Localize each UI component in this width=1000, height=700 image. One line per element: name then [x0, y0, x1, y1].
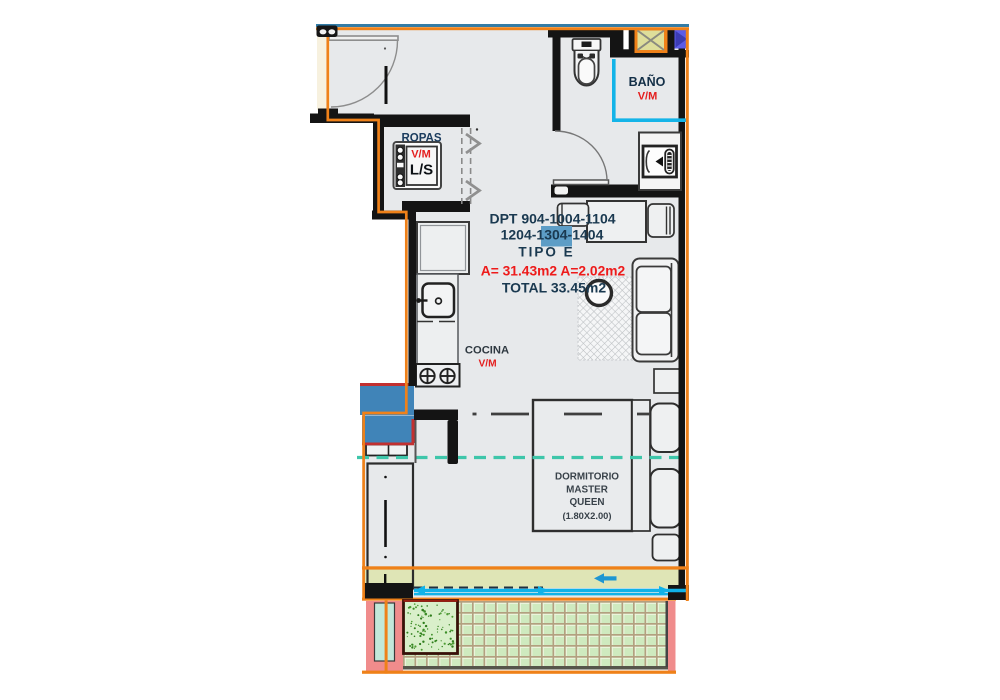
svg-text:(1.80X2.00): (1.80X2.00) [563, 510, 612, 521]
svg-text:DPT 904-1004-1104: DPT 904-1004-1104 [489, 211, 615, 227]
svg-text:DORMITORIO: DORMITORIO [555, 472, 619, 483]
svg-text:V/M: V/M [411, 149, 431, 161]
svg-text:QUEEN: QUEEN [569, 497, 604, 508]
svg-text:TIPO E: TIPO E [518, 244, 574, 259]
svg-text:ROPAS: ROPAS [401, 133, 441, 145]
svg-text:L/S: L/S [410, 162, 433, 179]
svg-text:TOTAL 33.45m2: TOTAL 33.45m2 [502, 279, 606, 295]
svg-text:MASTER: MASTER [566, 485, 608, 496]
svg-text:1204-1304-1404: 1204-1304-1404 [501, 227, 604, 243]
svg-text:BAÑO: BAÑO [629, 74, 666, 89]
svg-text:A= 31.43m2 A=2.02m2: A= 31.43m2 A=2.02m2 [481, 263, 626, 278]
svg-text:V/M: V/M [638, 91, 658, 103]
svg-text:V/M: V/M [478, 359, 496, 370]
svg-text:COCINA: COCINA [465, 345, 509, 357]
